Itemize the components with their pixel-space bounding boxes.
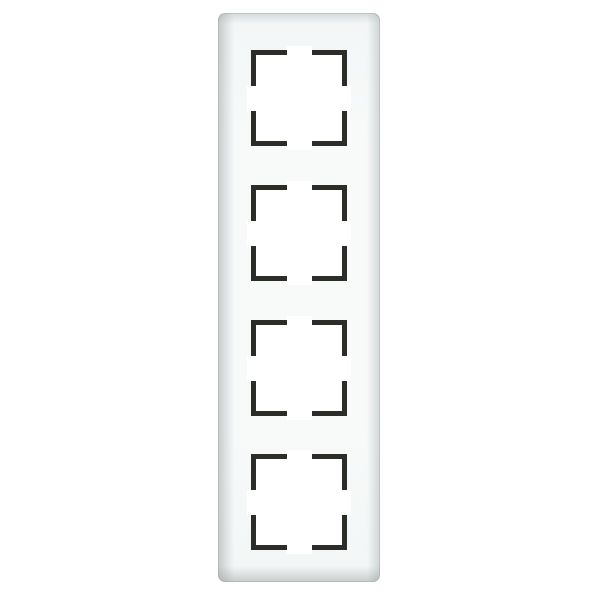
switch-opening-1 [251, 50, 347, 146]
switch-opening-4 [251, 454, 347, 550]
switch-opening-2 [251, 185, 347, 281]
fixing-notch-right [340, 86, 351, 111]
fixing-notch-left [247, 86, 258, 111]
fixing-notch-left [247, 490, 258, 515]
fixing-notch-top [287, 46, 312, 57]
opening-bracket [251, 320, 347, 416]
fixing-notch-left [247, 356, 258, 381]
opening-bracket [251, 50, 347, 146]
fixing-notch-bottom [287, 139, 312, 150]
fixing-notch-top [287, 316, 312, 327]
switch-frame-plate [218, 13, 380, 582]
fixing-notch-right [340, 221, 351, 246]
fixing-notch-right [340, 490, 351, 515]
fixing-notch-left [247, 221, 258, 246]
fixing-notch-bottom [287, 409, 312, 420]
fixing-notch-bottom [287, 274, 312, 285]
product-photo [0, 0, 600, 600]
fixing-notch-bottom [287, 543, 312, 554]
fixing-notch-top [287, 181, 312, 192]
fixing-notch-right [340, 356, 351, 381]
fixing-notch-top [287, 450, 312, 461]
opening-bracket [251, 185, 347, 281]
switch-opening-3 [251, 320, 347, 416]
opening-bracket [251, 454, 347, 550]
